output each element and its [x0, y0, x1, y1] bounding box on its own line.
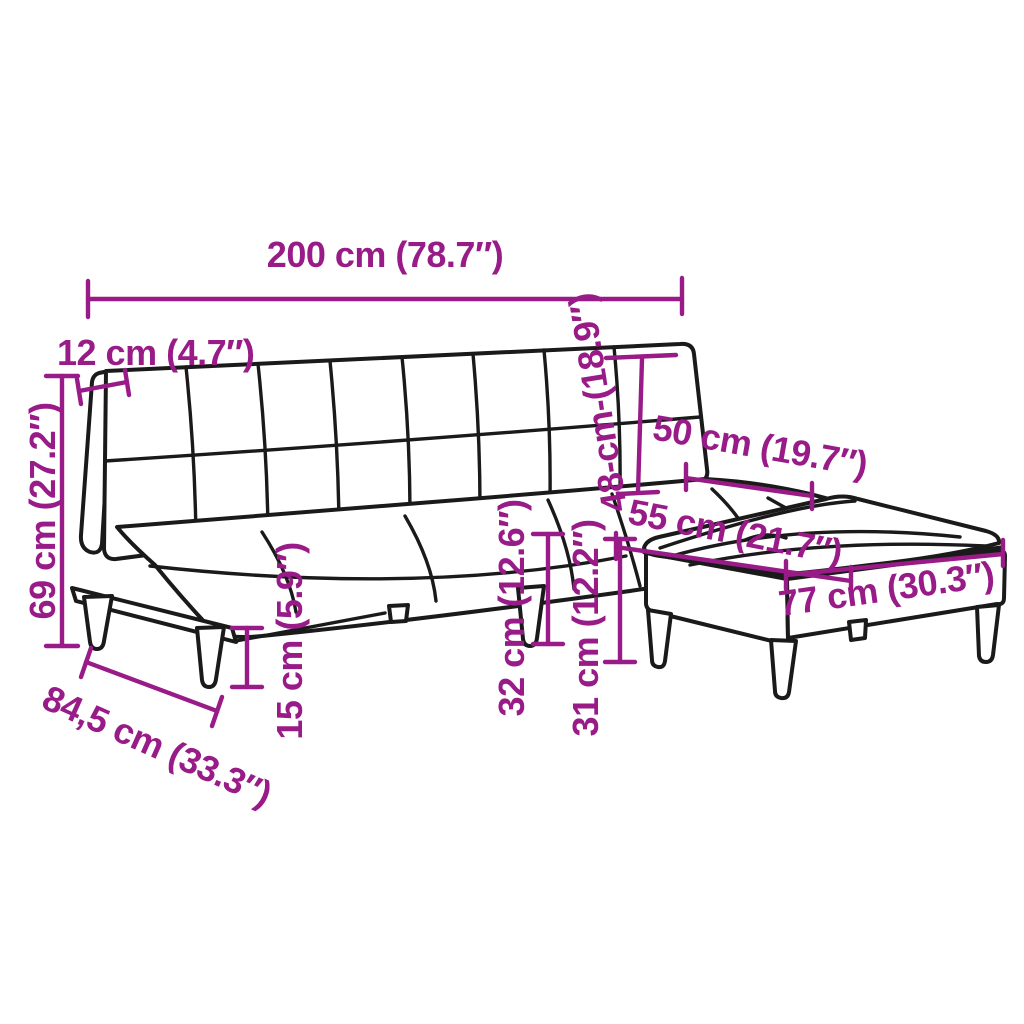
- dim-seat-height: 32 cm (12.6″): [491, 500, 563, 717]
- footstool-leg: [648, 610, 671, 667]
- dim-seat-depth-label: 84,5 cm (33.3″): [36, 677, 277, 814]
- dim-backrest-thickness-label: 12 cm (4.7″): [57, 332, 254, 373]
- dim-footstool-height-label: 31 cm (12.2″): [565, 520, 606, 737]
- dim-leg-height-label: 15 cm (5.9″): [269, 542, 310, 739]
- dim-total-height-label: 69 cm (27.2″): [22, 403, 63, 620]
- footstool-leg: [849, 620, 866, 640]
- dim-seat-height-label: 32 cm (12.6″): [491, 500, 532, 717]
- dim-total-width-label: 200 cm (78.7″): [267, 234, 503, 275]
- dim-total-height: 69 cm (27.2″): [22, 376, 78, 646]
- footstool-leg: [977, 605, 999, 662]
- sofa-leg: [389, 605, 408, 622]
- sofa-leg: [84, 596, 112, 649]
- footstool-leg: [771, 640, 796, 698]
- dimension-diagram: 200 cm (78.7″) 12 cm (4.7″) 69 cm (27.2″…: [0, 0, 1024, 1024]
- dim-seat-depth: 84,5 cm (33.3″): [36, 648, 277, 814]
- sofa-leg: [197, 627, 224, 687]
- sofa-diagram-canvas: 200 cm (78.7″) 12 cm (4.7″) 69 cm (27.2″…: [0, 0, 1024, 1024]
